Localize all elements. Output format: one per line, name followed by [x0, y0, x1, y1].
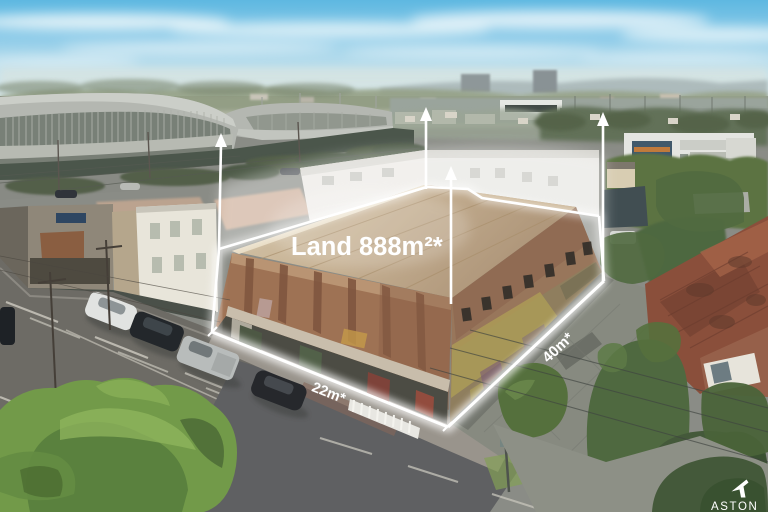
svg-text:ASTON: ASTON	[711, 501, 758, 512]
svg-text:Land 888m²*: Land 888m²*	[291, 233, 443, 261]
